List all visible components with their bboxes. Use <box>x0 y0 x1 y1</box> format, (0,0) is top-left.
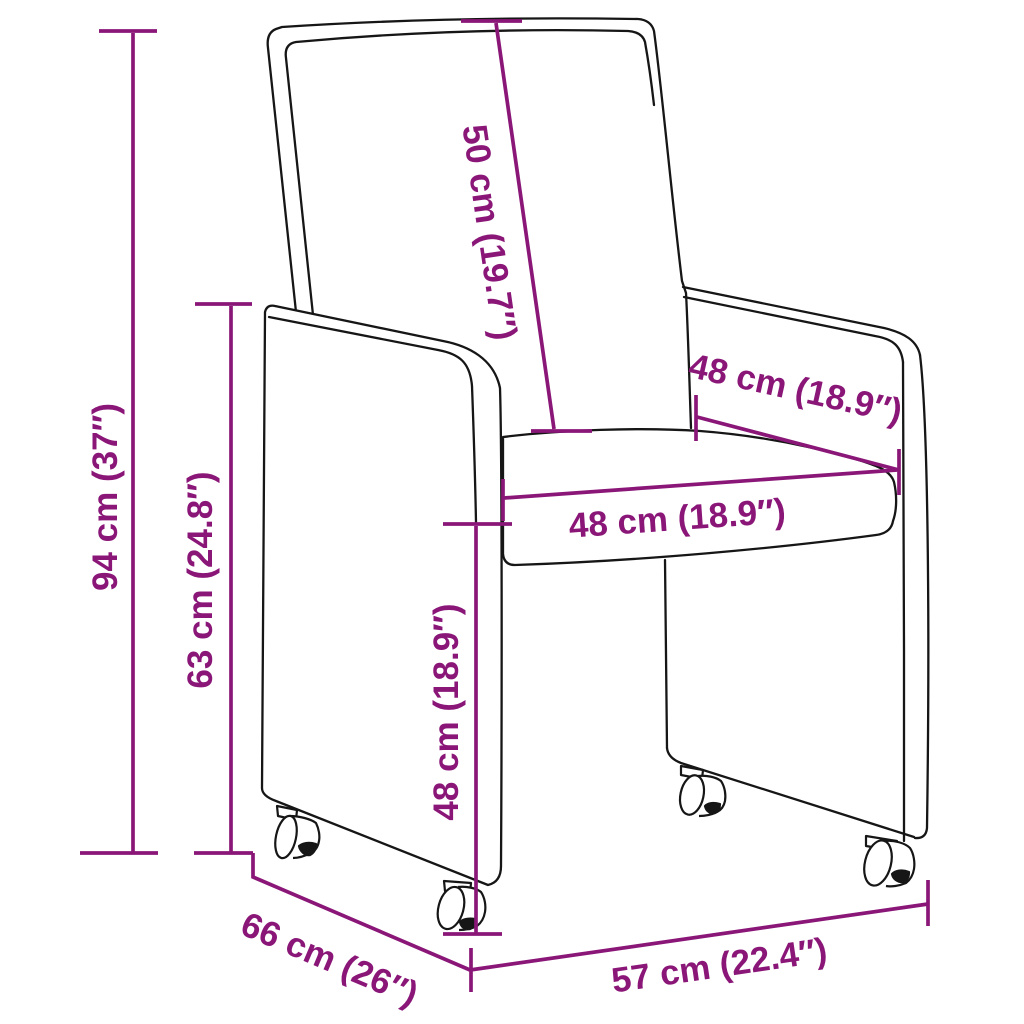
svg-text:48 cm (18.9″): 48 cm (18.9″) <box>427 603 466 820</box>
svg-text:63 cm (24.8″): 63 cm (24.8″) <box>181 471 220 688</box>
svg-text:94 cm (37″): 94 cm (37″) <box>86 403 125 591</box>
